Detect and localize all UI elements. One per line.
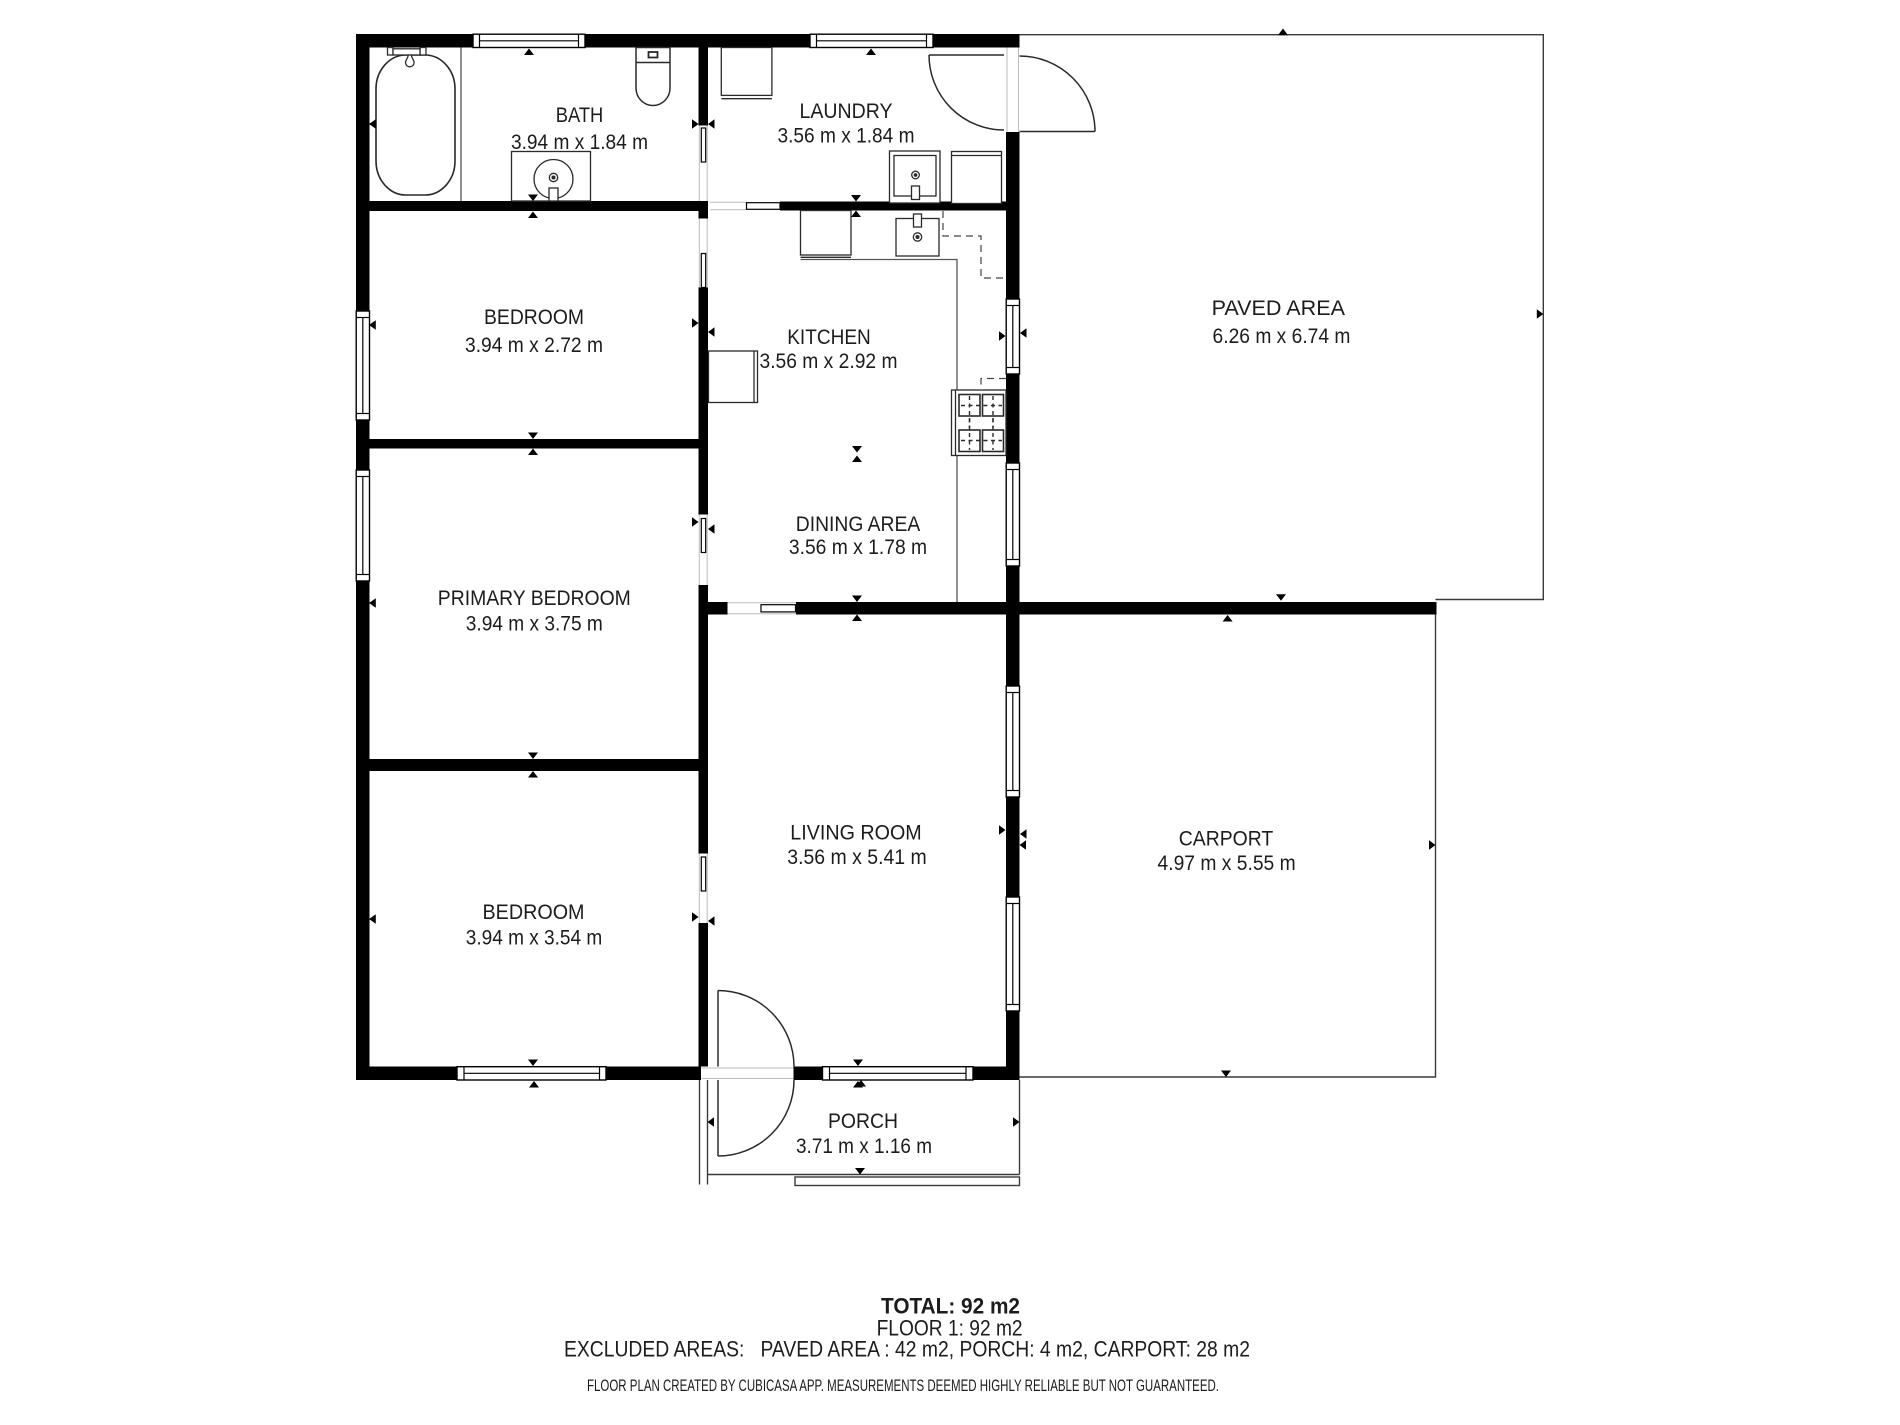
svg-text:FLOOR PLAN CREATED BY CUBICASA: FLOOR PLAN CREATED BY CUBICASA APP. MEAS… bbox=[587, 1376, 1219, 1395]
svg-text:DINING AREA: DINING AREA bbox=[796, 513, 921, 536]
svg-text:3.56 m x 2.92 m: 3.56 m x 2.92 m bbox=[760, 350, 898, 373]
svg-text:PORCH: PORCH bbox=[828, 1110, 898, 1133]
svg-text:PAVED AREA: PAVED AREA bbox=[1212, 297, 1345, 320]
svg-text:3.94 m x 3.75 m: 3.94 m x 3.75 m bbox=[466, 613, 603, 636]
svg-text:LIVING ROOM: LIVING ROOM bbox=[790, 821, 921, 844]
svg-text:3.56 m x 5.41 m: 3.56 m x 5.41 m bbox=[787, 846, 927, 869]
svg-text:6.26 m x 6.74 m: 6.26 m x 6.74 m bbox=[1213, 325, 1351, 348]
svg-text:PRIMARY BEDROOM: PRIMARY BEDROOM bbox=[438, 587, 631, 610]
svg-text:3.56 m x 1.78 m: 3.56 m x 1.78 m bbox=[789, 536, 927, 559]
svg-text:3.94 m x 2.72 m: 3.94 m x 2.72 m bbox=[465, 334, 603, 357]
svg-text:BATH: BATH bbox=[556, 104, 604, 127]
svg-text:BEDROOM: BEDROOM bbox=[484, 306, 584, 329]
svg-text:LAUNDRY: LAUNDRY bbox=[800, 100, 893, 123]
svg-text:CARPORT: CARPORT bbox=[1179, 827, 1274, 850]
svg-text:EXCLUDED AREAS: PAVED AREA :: EXCLUDED AREAS: PAVED AREA : 42 m2, PORC… bbox=[564, 1336, 1250, 1361]
svg-text:3.56 m x 1.84 m: 3.56 m x 1.84 m bbox=[778, 125, 915, 148]
svg-text:3.94 m x 1.84 m: 3.94 m x 1.84 m bbox=[511, 131, 648, 154]
svg-text:KITCHEN: KITCHEN bbox=[787, 326, 871, 349]
svg-text:BEDROOM: BEDROOM bbox=[483, 901, 585, 924]
svg-text:4.97 m x 5.55 m: 4.97 m x 5.55 m bbox=[1158, 852, 1296, 875]
svg-text:3.94 m x 3.54 m: 3.94 m x 3.54 m bbox=[466, 927, 603, 950]
svg-text:3.71 m x 1.16 m: 3.71 m x 1.16 m bbox=[796, 1135, 932, 1158]
